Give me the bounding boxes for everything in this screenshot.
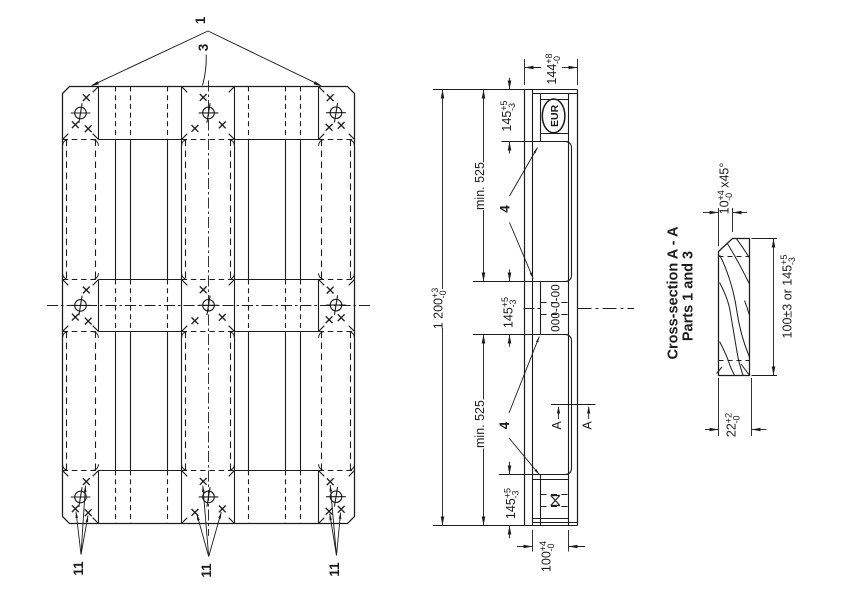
svg-text:A: A [581, 421, 595, 430]
svg-text:A: A [550, 421, 564, 430]
svg-text:4: 4 [498, 205, 513, 213]
svg-text:EUR: EUR [549, 104, 561, 127]
svg-text:Cross-section A - A: Cross-section A - A [665, 226, 681, 359]
svg-text:11: 11 [327, 562, 342, 577]
svg-text:min. 525: min. 525 [473, 162, 487, 210]
svg-text:min. 525: min. 525 [473, 400, 487, 448]
svg-text:3: 3 [196, 43, 211, 51]
svg-text:11: 11 [71, 561, 86, 576]
svg-text:000-0-00: 000-0-00 [551, 284, 563, 332]
svg-text:11: 11 [199, 563, 214, 578]
svg-text:Parts 1 and 3: Parts 1 and 3 [680, 251, 696, 341]
svg-text:4: 4 [497, 421, 512, 429]
svg-text:1: 1 [193, 16, 208, 24]
